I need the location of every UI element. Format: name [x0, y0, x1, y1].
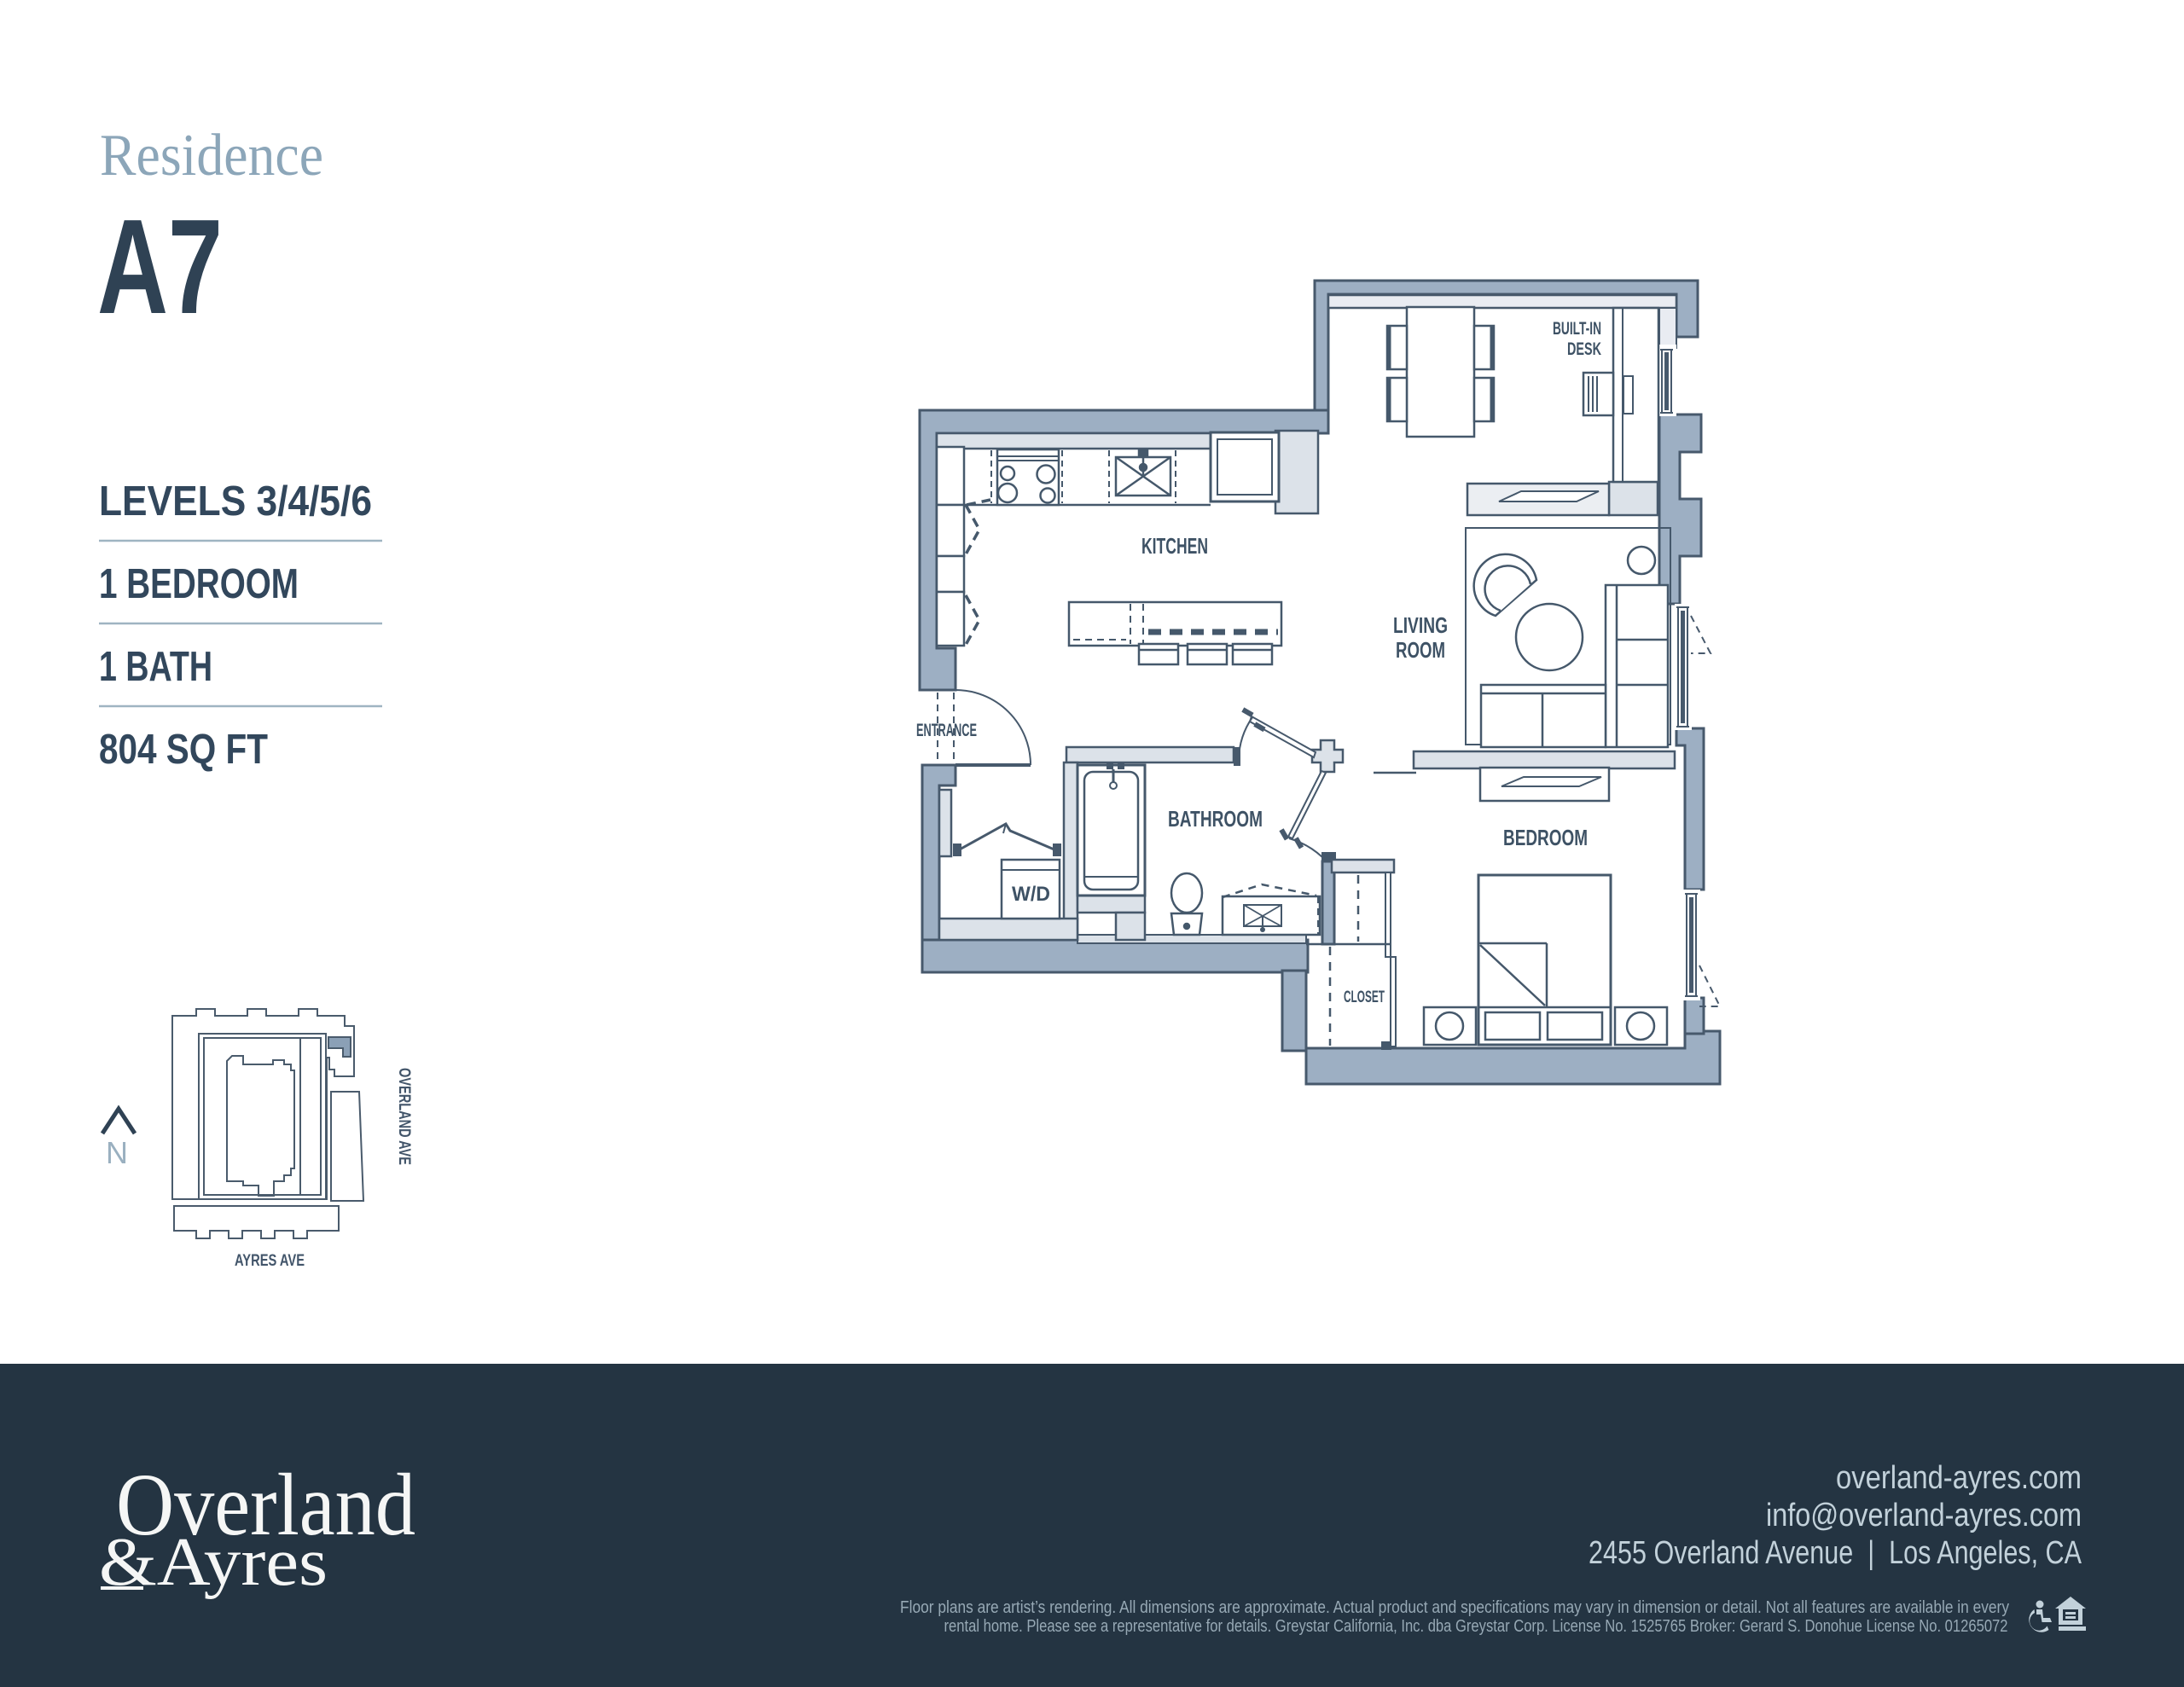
- svg-text:AYRES AVE: AYRES AVE: [235, 1252, 305, 1270]
- svg-text:BEDROOM: BEDROOM: [1503, 825, 1588, 850]
- svg-text:ROOM: ROOM: [1396, 637, 1445, 663]
- svg-text:Residence: Residence: [100, 123, 323, 188]
- svg-text:LEVELS 3/4/5/6: LEVELS 3/4/5/6: [99, 478, 372, 525]
- svg-text:CLOSET: CLOSET: [1344, 988, 1385, 1006]
- svg-text:BATHROOM: BATHROOM: [1168, 806, 1263, 832]
- svg-text:info@overland-ayres.com: info@overland-ayres.com: [1766, 1498, 2082, 1533]
- svg-text:2455 Overland Avenue | Los A: 2455 Overland Avenue | Los Angeles, CA: [1589, 1535, 2082, 1571]
- svg-text:A7: A7: [97, 192, 223, 342]
- svg-text:804 SQ FT: 804 SQ FT: [99, 727, 268, 773]
- svg-text:KITCHEN: KITCHEN: [1141, 533, 1208, 559]
- svg-text:rental home. Please see a repr: rental home. Please see a representative…: [944, 1617, 2008, 1636]
- svg-text:Floor plans are artist’s rende: Floor plans are artist’s rendering. All …: [900, 1598, 2009, 1617]
- svg-text:N: N: [106, 1135, 128, 1170]
- svg-text:1 BEDROOM: 1 BEDROOM: [99, 561, 299, 607]
- svg-text:1 BATH: 1 BATH: [99, 644, 212, 690]
- svg-text:OVERLAND AVE: OVERLAND AVE: [395, 1068, 413, 1165]
- svg-text:LIVING: LIVING: [1393, 612, 1448, 638]
- svg-text:BUILT-IN: BUILT-IN: [1553, 319, 1601, 339]
- svg-text:ENTRANCE: ENTRANCE: [916, 721, 977, 740]
- svg-text:DESK: DESK: [1567, 339, 1601, 359]
- svg-text:W/D: W/D: [1012, 883, 1050, 906]
- svg-text:overland-ayres.com: overland-ayres.com: [1836, 1460, 2082, 1496]
